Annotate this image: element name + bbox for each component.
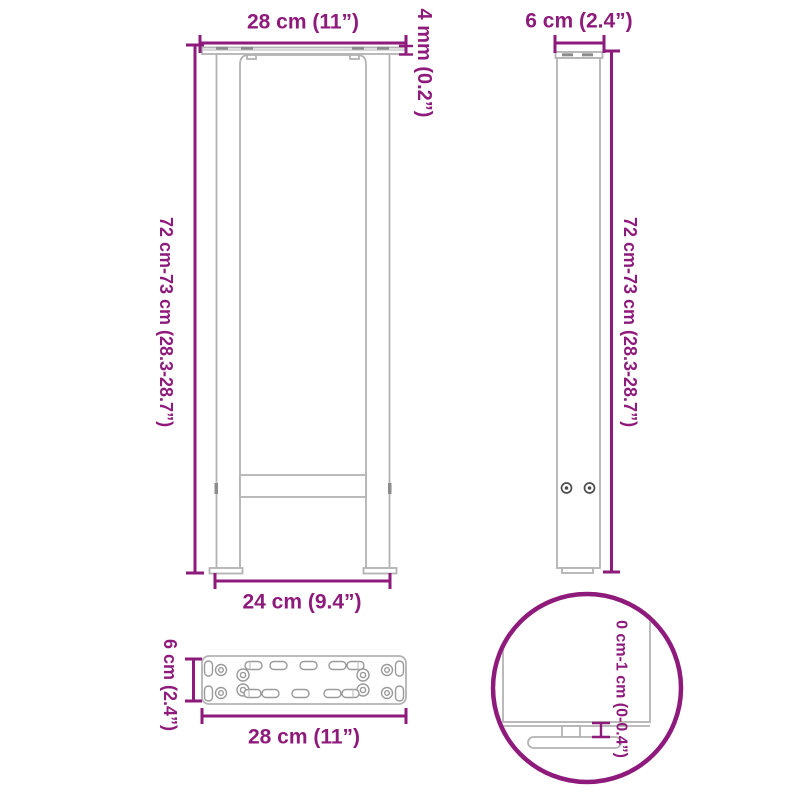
front-right-foot (364, 568, 397, 574)
front-base-width-label: 24 cm (9.4”) (242, 591, 361, 614)
plate-tab (216, 47, 228, 50)
plate-width-label: 28 cm (11”) (248, 726, 360, 749)
plate-depth-dimension: 6 cm (2.4”) (160, 639, 202, 731)
side-view: 6 cm (2.4”) 72 cm-73 cm (28.3-28.7”) (525, 10, 640, 574)
side-height-dimension: 72 cm-73 cm (28.3-28.7”) (603, 51, 640, 572)
product-dimension-diagram: 28 cm (11”) 4 mm (0.2”) 72 cm-73 cm (28.… (0, 0, 800, 800)
front-view: 28 cm (11”) 4 mm (0.2”) 72 cm-73 cm (28.… (156, 9, 435, 614)
detail-foot-stem (562, 726, 580, 737)
front-left-foot (210, 568, 243, 574)
plate-tab (352, 47, 364, 50)
side-screw-dot (565, 486, 569, 490)
plate-tab (241, 47, 253, 50)
front-right-rivet (388, 483, 392, 494)
plate-slot-vertical (396, 686, 404, 701)
dimension-diagram-canvas: 28 cm (11”) 4 mm (0.2”) 72 cm-73 cm (28.… (0, 0, 800, 800)
foot-detail-view: 0 cm-1 cm (0-0.4”) (493, 555, 681, 782)
front-plate-thickness-label: 4 mm (0.2”) (413, 9, 435, 118)
plate-slot-vertical (396, 661, 404, 676)
side-depth-dimension: 6 cm (2.4”) (525, 10, 632, 54)
front-base-width-dimension: 24 cm (9.4”) (215, 573, 390, 614)
front-plate-thickness-dimension: 4 mm (0.2”) (399, 9, 435, 118)
plate-width-dimension: 28 cm (11”) (202, 708, 406, 749)
side-foot (562, 568, 593, 573)
side-plate-tab (562, 53, 573, 56)
plate-slot-vertical (205, 686, 213, 701)
side-plate-tab (582, 53, 593, 56)
side-screw-dot (588, 486, 592, 490)
plate-slot-vertical (205, 661, 213, 676)
detail-circle-outline (493, 594, 681, 782)
side-height-label: 72 cm-73 cm (28.3-28.7”) (620, 217, 640, 427)
foot-detail-content: 0 cm-1 cm (0-0.4”) (503, 555, 650, 758)
plate-top-view: 6 cm (2.4”) 28 cm (11”) (160, 639, 406, 749)
front-height-dimension: 72 cm-73 cm (28.3-28.7”) (156, 45, 204, 573)
side-depth-label: 6 cm (2.4”) (525, 10, 632, 33)
detail-adjustable-foot (528, 737, 621, 748)
front-clip (247, 55, 256, 59)
front-crossbar (240, 475, 366, 497)
front-top-width-label: 28 cm (11”) (247, 11, 359, 34)
front-left-rivet (215, 483, 219, 494)
front-top-plate (202, 48, 406, 55)
front-height-label: 72 cm-73 cm (28.3-28.7”) (156, 217, 176, 427)
detail-adjust-label: 0 cm-1 cm (0-0.4”) (613, 620, 630, 758)
plate-tab (377, 47, 389, 50)
front-clip (350, 55, 359, 59)
plate-depth-label: 6 cm (2.4”) (160, 639, 180, 731)
